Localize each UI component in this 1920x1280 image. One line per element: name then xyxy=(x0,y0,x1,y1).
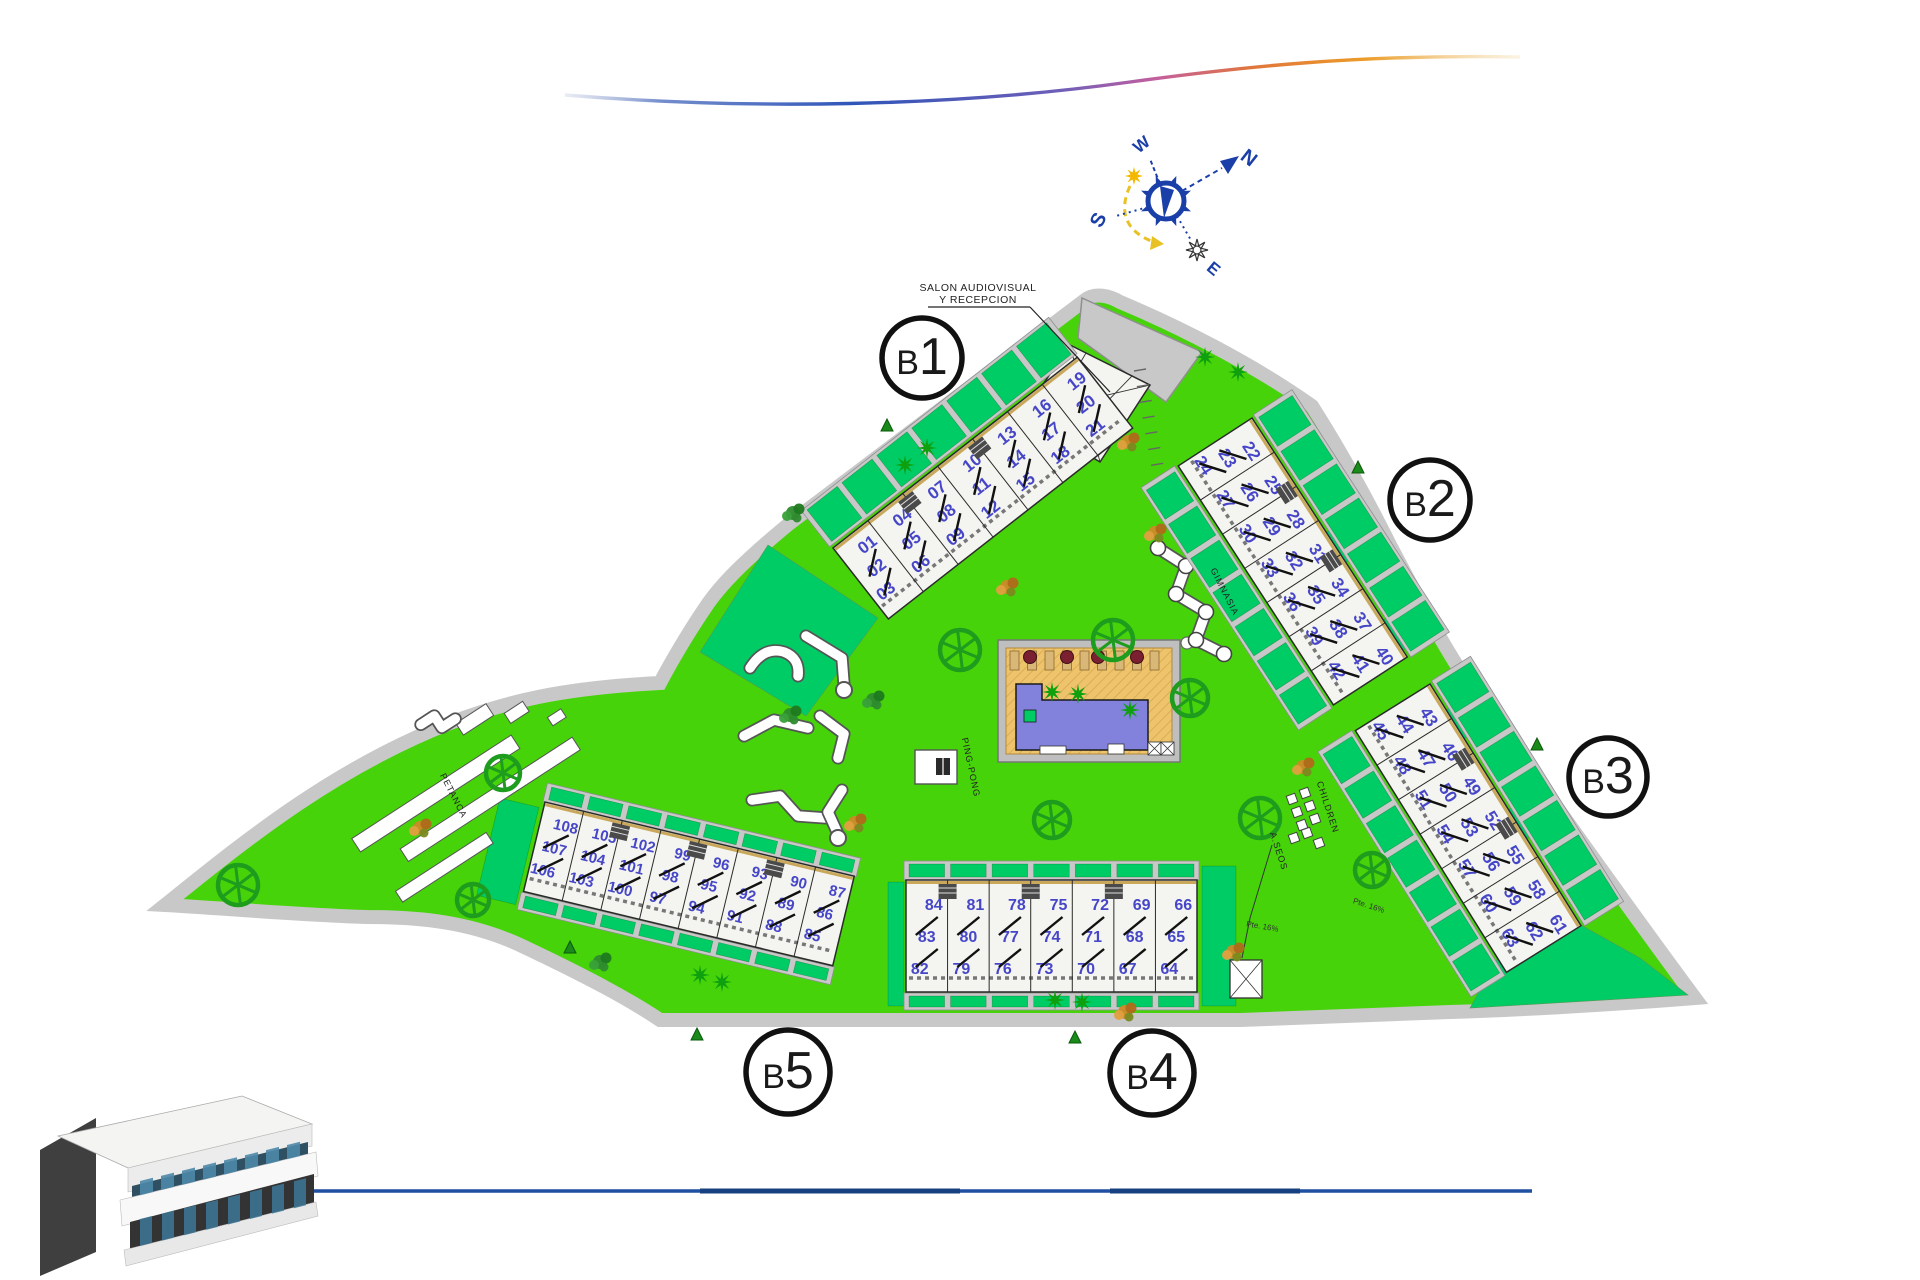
garden-cell xyxy=(992,996,1028,1007)
palm-icon xyxy=(1195,347,1215,367)
palm-icon xyxy=(1072,992,1092,1012)
palm-icon xyxy=(712,972,732,992)
stairwell xyxy=(939,884,957,899)
sunbed xyxy=(1150,651,1159,670)
pool-area xyxy=(998,637,1193,762)
garden-cell xyxy=(1117,864,1153,877)
garden-cell xyxy=(992,864,1028,877)
parasol xyxy=(1024,651,1037,664)
unit-number: 66 xyxy=(1174,897,1192,914)
garden-cell xyxy=(1075,864,1111,877)
minigolf-pad xyxy=(830,830,846,846)
site-plan-drawing: 0102030405060708091011121314151617181920… xyxy=(0,0,1920,1280)
east-line xyxy=(1177,216,1192,242)
compass-s: S xyxy=(1086,209,1112,231)
pingpong-table xyxy=(915,750,957,784)
gate-marker xyxy=(1531,738,1543,750)
garden-cell xyxy=(909,864,945,877)
palm-icon xyxy=(1068,684,1088,704)
garden-cell xyxy=(951,864,987,877)
shrub-icon xyxy=(782,504,805,523)
reception-label-line1: SALON AUDIOVISUAL xyxy=(919,282,1036,294)
palm-icon xyxy=(917,438,937,458)
logo-window xyxy=(228,1194,240,1224)
gym-station xyxy=(1217,647,1232,662)
stairwell xyxy=(1022,884,1040,899)
south-line xyxy=(1116,207,1148,216)
garden-cell xyxy=(951,996,987,1007)
top-swoosh-line xyxy=(565,57,1520,105)
compass-rose: N W S E xyxy=(1086,132,1261,280)
pool-planter xyxy=(1024,710,1036,722)
sunbed xyxy=(1080,651,1089,670)
north-line xyxy=(1182,168,1222,191)
minigolf-pad xyxy=(836,682,852,698)
reception-label-line2: Y RECEPCION xyxy=(939,294,1017,306)
sunbed xyxy=(1045,651,1054,670)
site-plan-page: 0102030405060708091011121314151617181920… xyxy=(0,0,1920,1280)
parasol xyxy=(1131,651,1144,664)
gym-station xyxy=(1151,541,1166,556)
palm-icon xyxy=(895,455,915,475)
pool-steps xyxy=(1040,746,1066,754)
garden-cell xyxy=(1158,864,1194,877)
gate-marker xyxy=(881,419,893,431)
logo-window xyxy=(140,1216,152,1246)
gate-marker xyxy=(691,1028,703,1040)
pool-corner-tiles xyxy=(1148,742,1174,755)
block-b4: 8483828180797877767574737271706968676665… xyxy=(904,861,1199,1010)
compass-w: W xyxy=(1129,132,1154,157)
stairwell xyxy=(1105,884,1123,899)
sunbed-row xyxy=(1010,651,1159,671)
gym-station xyxy=(1169,587,1184,602)
unit-number: 84 xyxy=(925,897,943,914)
unit-number: 72 xyxy=(1091,897,1109,914)
logo-window xyxy=(206,1200,218,1230)
compass-n: N xyxy=(1236,145,1261,171)
gate-marker xyxy=(1069,1031,1081,1043)
logo-window xyxy=(184,1205,196,1235)
block-label-b2: B2 xyxy=(1390,460,1470,540)
logo-window xyxy=(272,1184,284,1214)
sun-outline-icon xyxy=(1193,246,1201,254)
gym-station xyxy=(1199,605,1214,620)
logo-window xyxy=(294,1178,306,1208)
garden-cell xyxy=(1158,996,1194,1007)
north-arrowhead xyxy=(1220,156,1239,174)
unit-number: 69 xyxy=(1133,897,1151,914)
gym-station xyxy=(1189,633,1204,648)
compass-e: E xyxy=(1203,258,1224,280)
palm-icon xyxy=(1120,700,1140,720)
palm-icon xyxy=(1045,990,1065,1010)
garden-patch xyxy=(888,882,904,1006)
sun-path-arrow xyxy=(1150,236,1164,250)
palm-icon xyxy=(690,965,710,985)
sun-icon xyxy=(1131,173,1138,180)
block-label-b1: B1 xyxy=(882,318,962,398)
block-label-b3: B3 xyxy=(1569,738,1647,816)
palm-icon xyxy=(1228,362,1248,382)
garden-cell xyxy=(909,996,945,1007)
block-label-b5: B5 xyxy=(746,1030,830,1114)
logo-window xyxy=(250,1189,262,1219)
block-label-b4: B4 xyxy=(1110,1031,1194,1115)
unit-number: 78 xyxy=(1008,897,1026,914)
unit-number: 75 xyxy=(1050,897,1068,914)
garden-cell xyxy=(1034,864,1070,877)
pool-steps xyxy=(1108,744,1124,754)
unit-number: 81 xyxy=(966,897,984,914)
developer-logo-building xyxy=(40,1096,318,1276)
palm-icon xyxy=(1042,682,1062,702)
sunbed xyxy=(1010,651,1019,670)
parasol xyxy=(1061,651,1074,664)
logo-window xyxy=(162,1211,174,1241)
